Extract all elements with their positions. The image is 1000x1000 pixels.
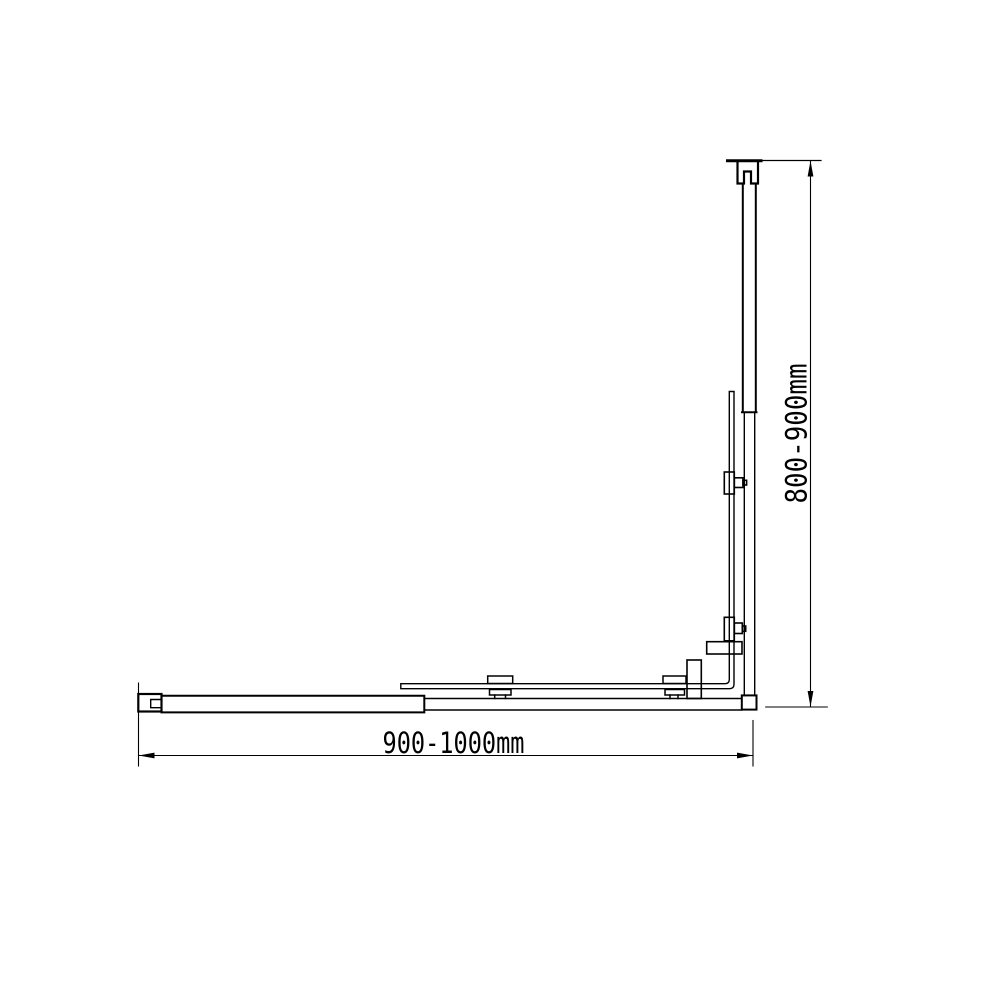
height-dimension: 800-900mm [766,161,828,707]
clamp-stem [734,478,743,488]
clamp-stem [734,623,742,634]
wall-bracket [138,694,161,712]
front-glass-clamp-right [663,676,686,699]
clamp-plate [663,676,686,684]
arrow-up-icon [808,161,814,177]
ceiling-bracket [738,162,759,184]
arrow-right-icon [737,753,753,759]
height-dimension-label: 800-900mm [780,364,814,504]
clamp-flange [665,690,685,696]
side-glass-clamp-lower [724,617,745,641]
corner-connector-block [742,695,757,709]
front-glass-clamp-left [488,676,513,699]
side-glass-clamp-upper [724,472,746,494]
clamp-flange [490,690,512,696]
arrow-left-icon [139,753,155,759]
vertical-support-bar-inner [744,413,754,696]
width-dimension-label: 900-1000mm [383,726,525,760]
arrow-down-icon [808,691,814,707]
corner-bracket-horizontal [707,642,742,654]
bottom-support-bar-outer [162,696,425,713]
clamp-plate [488,676,513,684]
technical-drawing-page: 900-1000mm 800-900mm [0,0,1000,1000]
shower-screen-dimension-drawing: 900-1000mm 800-900mm [0,0,1000,1000]
vertical-support-bar-outer [742,184,757,413]
wall-bracket-slot [151,700,162,708]
corner-bracket-vertical [687,660,701,699]
bottom-support-bar-inner [425,699,742,711]
glass-panel-outline [401,392,734,689]
